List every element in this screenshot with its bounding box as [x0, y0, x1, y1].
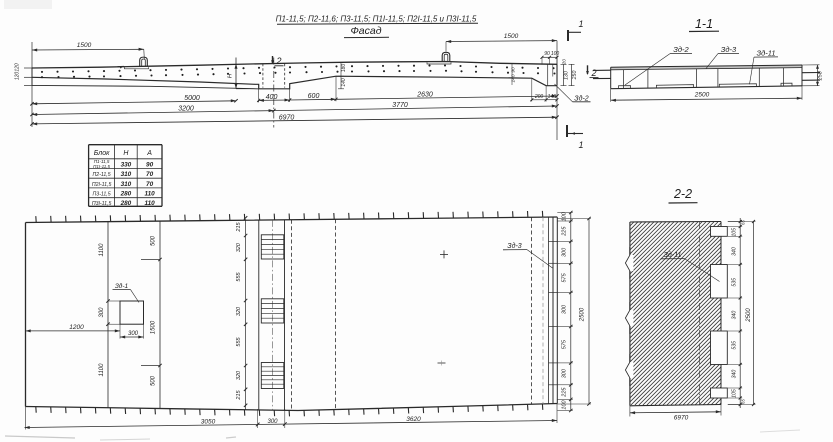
svg-text:2500: 2500: [746, 308, 752, 323]
svg-text:Зд-3: Зд-3: [507, 242, 521, 250]
svg-text:280: 280: [120, 200, 132, 207]
svg-text:Фасад: Фасад: [350, 25, 381, 37]
svg-text:Зд-2: Зд-2: [673, 45, 689, 54]
svg-text:1200: 1200: [69, 324, 84, 331]
svg-text:300: 300: [562, 247, 568, 257]
svg-text:555: 555: [236, 336, 242, 346]
svg-text:1500: 1500: [151, 320, 157, 334]
svg-text:Зд-11: Зд-11: [756, 49, 775, 58]
svg-text:П3І-11,5: П3І-11,5: [92, 201, 112, 207]
svg-text:340: 340: [732, 370, 738, 379]
svg-text:575: 575: [562, 339, 568, 349]
svg-text:1-1: 1-1: [695, 17, 713, 31]
svg-text:3050: 3050: [201, 419, 216, 426]
svg-text:105: 105: [732, 228, 738, 237]
svg-text:110: 110: [145, 191, 156, 198]
svg-text:П1І-11,5: П1І-11,5: [93, 164, 110, 169]
svg-text:П2-11,5: П2-11,5: [93, 172, 111, 178]
svg-text:400: 400: [266, 94, 278, 101]
svg-text:120: 120: [15, 63, 21, 72]
svg-text:2500: 2500: [694, 92, 710, 99]
svg-text:310: 310: [121, 171, 132, 178]
svg-text:2-2: 2-2: [673, 187, 692, 201]
svg-text:1500: 1500: [504, 33, 519, 40]
svg-text:300: 300: [562, 304, 568, 314]
svg-text:П3-11,5: П3-11,5: [93, 192, 111, 198]
svg-text:Зд-2: Зд-2: [574, 94, 588, 102]
svg-text:320: 320: [236, 242, 242, 252]
svg-text:Зд-3: Зд-3: [721, 45, 737, 54]
svg-text:90: 90: [511, 67, 517, 73]
svg-text:H: H: [228, 73, 234, 78]
svg-text:300: 300: [267, 419, 278, 425]
svg-text:А: А: [146, 150, 152, 157]
svg-text:310: 310: [121, 181, 132, 188]
svg-text:225: 225: [562, 387, 568, 398]
svg-text:5000: 5000: [184, 95, 200, 102]
svg-text:600: 600: [308, 93, 320, 100]
svg-text:140: 140: [548, 94, 557, 100]
svg-text:555: 555: [236, 271, 242, 281]
svg-text:300: 300: [562, 368, 568, 378]
svg-text:340: 340: [732, 311, 738, 320]
svg-text:575: 575: [562, 272, 568, 282]
svg-text:215: 215: [236, 389, 242, 400]
svg-text:535: 535: [732, 278, 738, 287]
svg-text:3620: 3620: [406, 416, 421, 423]
svg-text:140: 140: [511, 74, 517, 82]
svg-text:140: 140: [341, 78, 347, 87]
svg-text:215: 215: [236, 221, 242, 232]
svg-text:225: 225: [562, 226, 568, 237]
svg-text:100: 100: [562, 211, 568, 221]
svg-text:200: 200: [534, 94, 544, 100]
svg-text:500: 500: [151, 235, 157, 246]
svg-text:70: 70: [146, 171, 154, 178]
svg-text:90: 90: [544, 51, 550, 57]
svg-text:100: 100: [562, 399, 568, 409]
svg-text:Блок: Блок: [94, 150, 110, 157]
svg-text:250: 250: [572, 71, 578, 81]
svg-text:320: 320: [236, 306, 242, 316]
svg-text:2: 2: [275, 56, 281, 66]
svg-text:2500: 2500: [580, 307, 586, 322]
svg-text:3200: 3200: [178, 106, 194, 113]
svg-text:6970: 6970: [279, 114, 295, 121]
svg-text:500: 500: [151, 375, 157, 386]
svg-text:535: 535: [732, 341, 738, 350]
svg-text:340: 340: [732, 247, 738, 256]
svg-text:90: 90: [146, 161, 154, 168]
svg-text:300: 300: [99, 307, 105, 318]
svg-text:65: 65: [741, 399, 746, 404]
svg-text:330: 330: [121, 161, 132, 168]
svg-text:1100: 1100: [99, 243, 105, 257]
svg-text:130: 130: [563, 71, 569, 80]
svg-text:П2І-11,5: П2І-11,5: [92, 182, 112, 188]
svg-text:Зд-1: Зд-1: [115, 282, 129, 290]
svg-text:180: 180: [341, 64, 347, 73]
svg-text:65: 65: [741, 220, 746, 225]
svg-text:300: 300: [128, 331, 139, 337]
svg-text:2: 2: [590, 68, 596, 78]
svg-text:100: 100: [551, 51, 560, 57]
svg-text:1: 1: [578, 19, 583, 29]
svg-text:1: 1: [578, 140, 583, 150]
svg-text:280: 280: [120, 191, 132, 198]
svg-text:320: 320: [236, 370, 242, 380]
svg-text:2630: 2630: [416, 92, 433, 99]
svg-text:120: 120: [15, 72, 21, 81]
svg-text:1100: 1100: [99, 363, 105, 377]
svg-text:3770: 3770: [392, 102, 408, 109]
svg-text:6970: 6970: [674, 415, 689, 422]
svg-text:Зд-11: Зд-11: [664, 251, 682, 259]
svg-text:110: 110: [145, 200, 156, 207]
svg-text:70: 70: [146, 181, 154, 188]
svg-text:П1-11,5; П2-11,6; П3-11,5; П1: П1-11,5; П2-11,6; П3-11,5; П1І-11,5; П2І…: [276, 15, 477, 24]
svg-text:1500: 1500: [77, 42, 92, 49]
svg-text:250: 250: [818, 70, 824, 81]
svg-text:105: 105: [732, 389, 738, 398]
